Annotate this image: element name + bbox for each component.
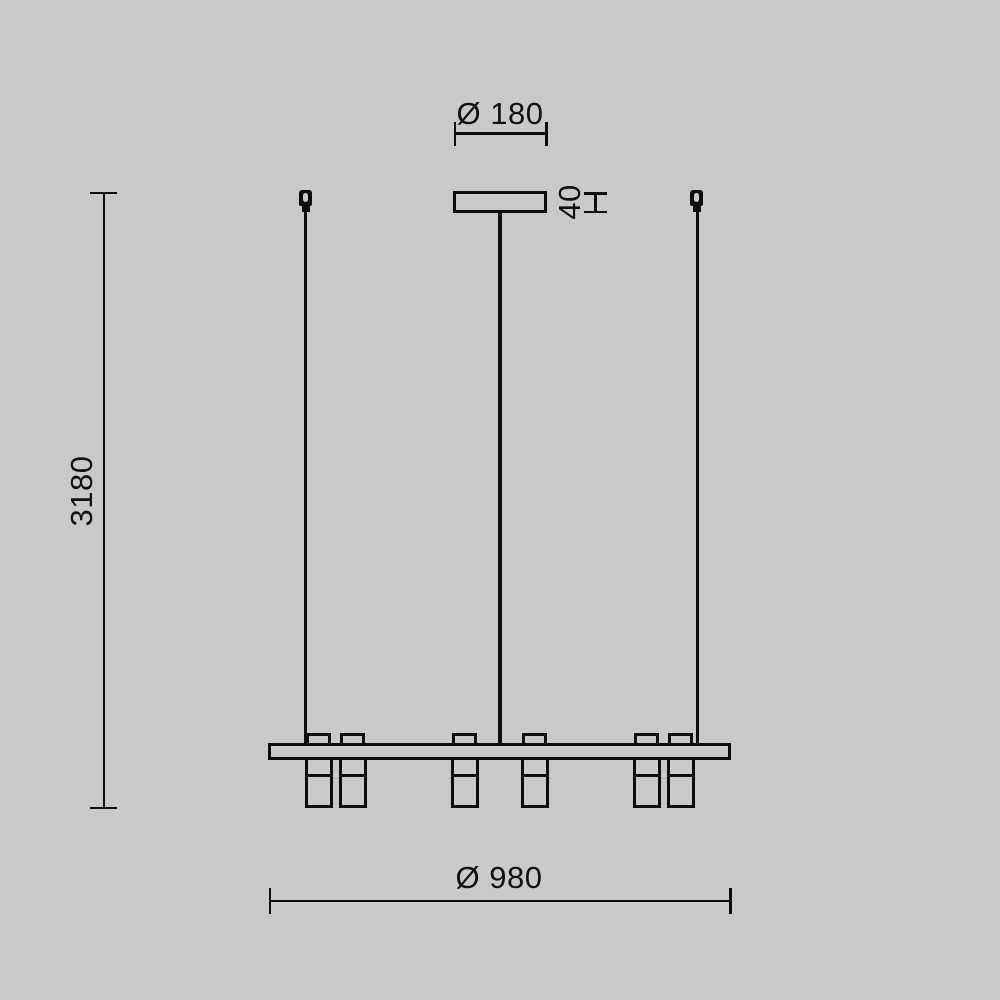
overall-height-dim-tick-bottom	[90, 807, 117, 810]
fixture-bar	[268, 743, 731, 760]
suspension-cable-left	[304, 204, 307, 745]
cable-gripper-left-neck	[302, 204, 310, 212]
canopy-diameter-dim-tick-right	[545, 122, 548, 146]
light-head-5-divider	[636, 774, 658, 777]
canopy-diameter-dim-line	[454, 132, 547, 135]
cable-gripper-left	[299, 190, 312, 206]
suspension-cable-right	[696, 204, 699, 745]
light-head-5	[633, 757, 661, 808]
canopy-height-label: 40	[554, 162, 586, 242]
light-head-1-divider	[308, 774, 330, 777]
ceiling-canopy	[453, 191, 547, 213]
bar-diameter-dim-tick-right	[729, 888, 732, 914]
canopy-diameter-dim-tick-left	[454, 122, 457, 146]
canopy-height-dim-line	[594, 193, 597, 212]
light-head-6-divider	[670, 774, 692, 777]
light-head-2	[339, 757, 367, 808]
light-head-4	[521, 757, 549, 808]
light-head-3	[451, 757, 479, 808]
light-head-6	[667, 757, 695, 808]
bar-diameter-dim-tick-left	[269, 888, 272, 914]
light-head-2-divider	[342, 774, 364, 777]
overall-height-label: 3180	[66, 431, 98, 551]
central-stem	[498, 211, 502, 745]
pendant-lamp-dimension-drawing: Ø 180 3180 40	[0, 0, 1000, 1000]
bar-diameter-label: Ø 980	[399, 862, 599, 894]
light-head-1	[305, 757, 333, 808]
overall-height-dim-line	[103, 193, 106, 808]
bar-diameter-dim-line	[269, 900, 730, 903]
canopy-diameter-label: Ø 180	[420, 98, 580, 130]
cable-gripper-right-slot	[694, 193, 699, 202]
cable-gripper-right-neck	[693, 204, 701, 212]
cable-gripper-left-slot	[303, 193, 308, 202]
overall-height-dim-tick-top	[90, 192, 117, 195]
cable-gripper-right	[690, 190, 703, 206]
light-head-3-divider	[454, 774, 476, 777]
light-head-4-divider	[524, 774, 546, 777]
